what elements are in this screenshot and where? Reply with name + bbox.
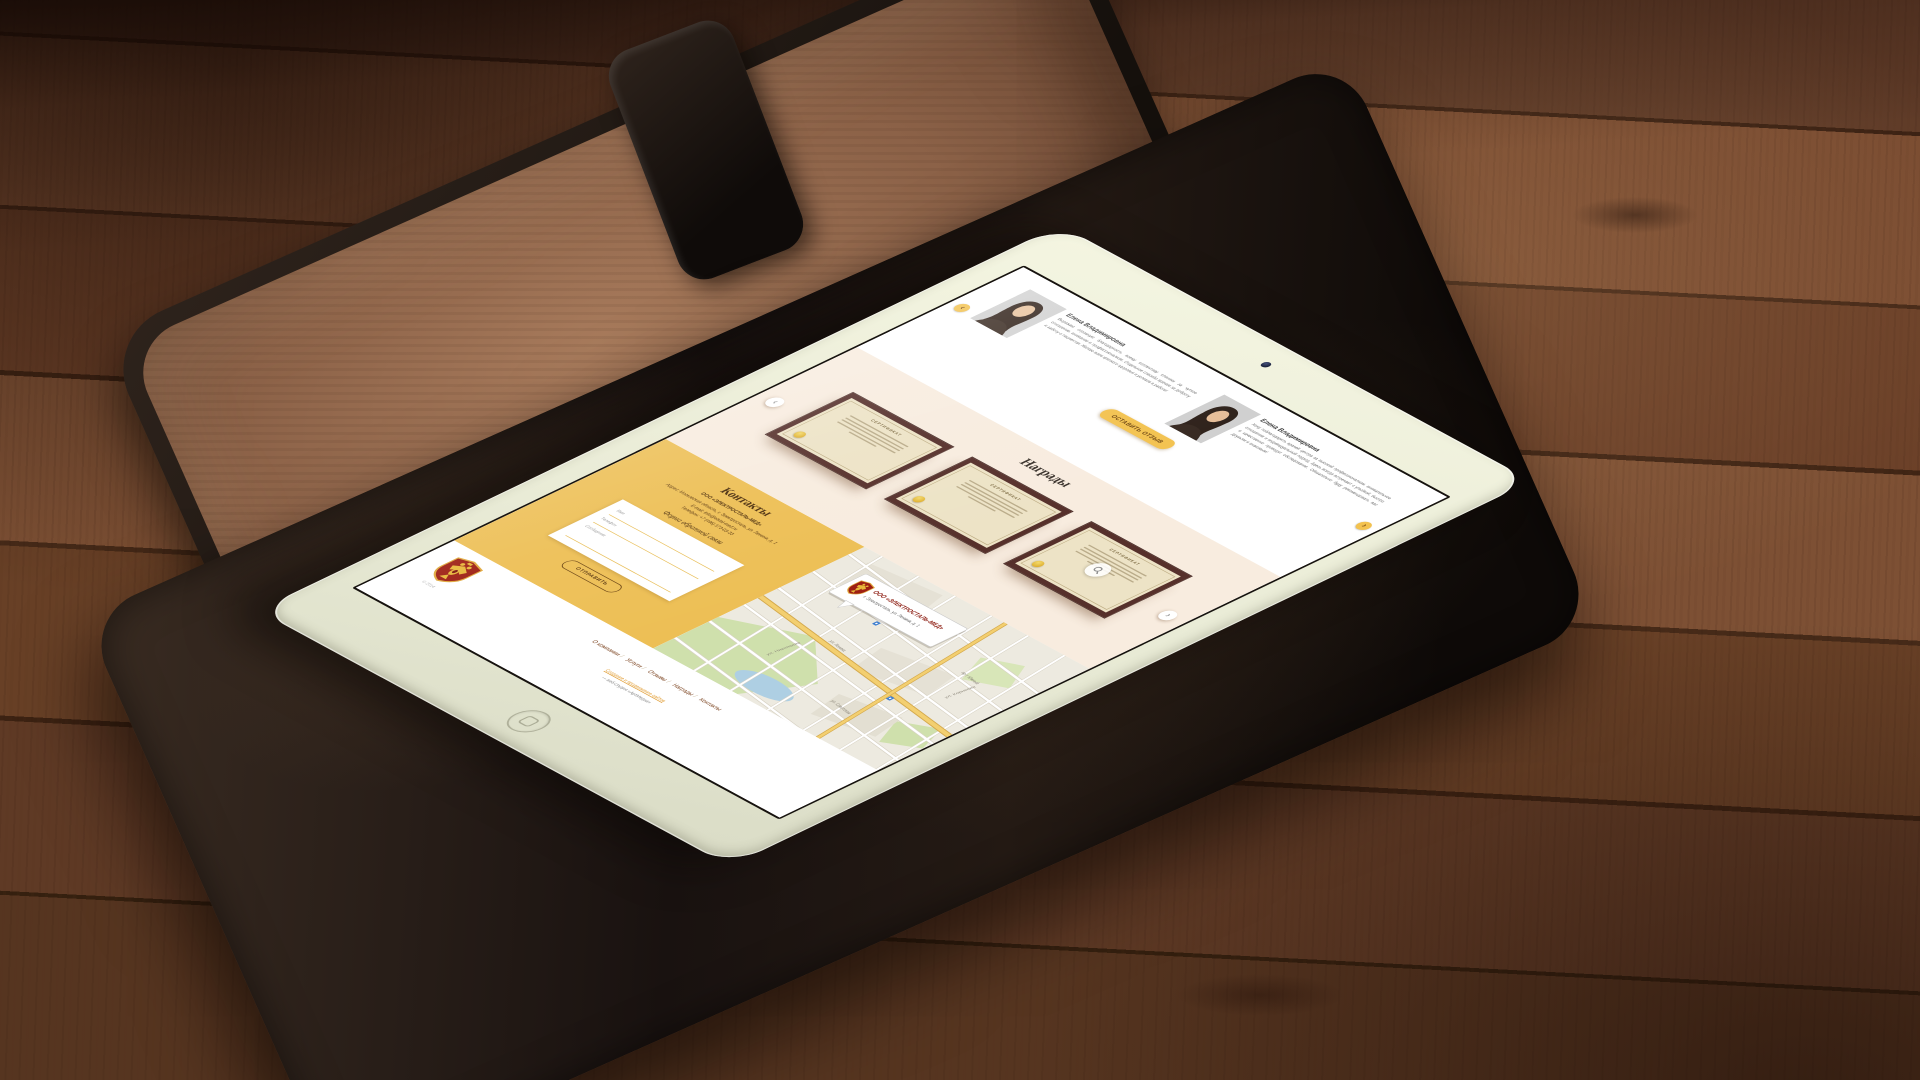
review-card: Елена Владимировна Выражаю огромную благ… <box>970 289 1210 415</box>
reviews-prev-arrow-icon[interactable]: ‹ <box>951 302 974 314</box>
review-card: Елена Владимировна Хочу поблагодарить вр… <box>1164 395 1404 521</box>
gold-seal-icon <box>791 430 808 439</box>
footer-link-services[interactable]: Услуги <box>623 657 644 668</box>
home-button-glyph <box>517 715 541 727</box>
gold-seal-icon <box>1029 560 1046 569</box>
review-card-body: Елена Владимировна Выражаю огромную благ… <box>1012 312 1210 416</box>
footer-link-about[interactable]: О компании <box>590 639 623 656</box>
footer-link-reviews[interactable]: Отзывы <box>645 669 669 682</box>
zoom-magnifier-icon[interactable] <box>1079 560 1117 579</box>
home-button <box>498 706 560 737</box>
footer-link-awards[interactable]: Награды <box>670 683 696 697</box>
review-card-body: Елена Владимировна Хочу поблагодарить вр… <box>1206 417 1404 521</box>
footer-link-contacts[interactable]: Контакты <box>697 697 724 711</box>
review-text: Выражаю огромную благодарность всему кол… <box>1041 317 1199 402</box>
photo-scene: ‹ Еле <box>0 0 1920 1080</box>
review-text: Хочу поблагодарить врачей центра за высо… <box>1228 423 1393 511</box>
gold-seal-icon <box>910 495 927 504</box>
reviews-next-arrow-icon[interactable]: › <box>1352 520 1375 532</box>
front-camera-icon <box>1259 361 1274 368</box>
